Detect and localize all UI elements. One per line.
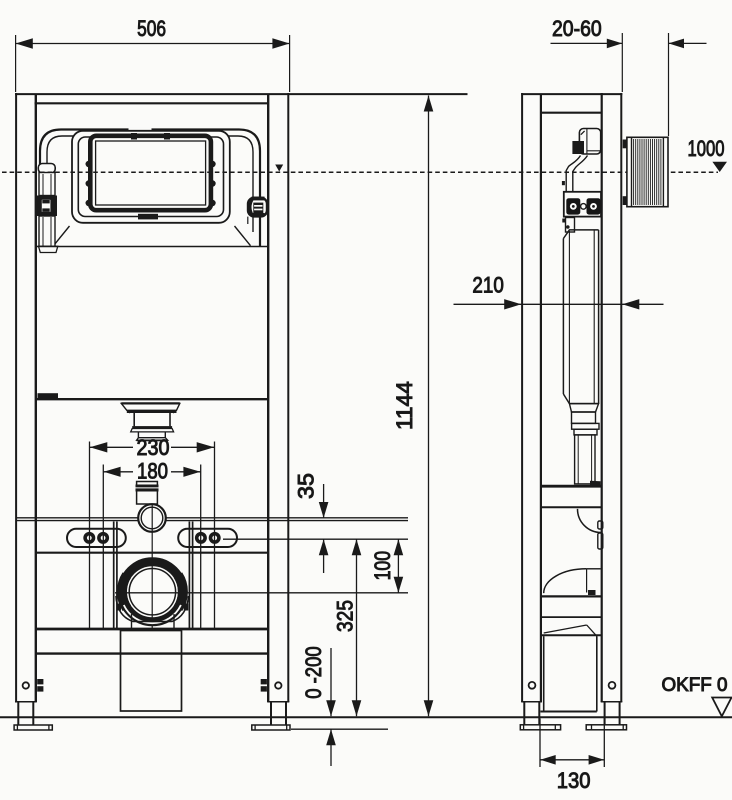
svg-text:1144: 1144 xyxy=(392,381,417,430)
svg-text:20-60: 20-60 xyxy=(552,16,602,41)
svg-text:180: 180 xyxy=(137,459,168,484)
svg-text:0 -200: 0 -200 xyxy=(301,646,326,699)
svg-text:35: 35 xyxy=(294,473,319,499)
svg-text:130: 130 xyxy=(557,768,591,793)
svg-text:230: 230 xyxy=(137,435,170,460)
svg-text:100: 100 xyxy=(370,551,395,581)
svg-text:325: 325 xyxy=(333,600,358,632)
svg-text:1000: 1000 xyxy=(688,136,725,161)
svg-text:OKFF 0: OKFF 0 xyxy=(662,675,728,696)
svg-text:210: 210 xyxy=(472,272,503,297)
svg-text:506: 506 xyxy=(137,16,166,41)
